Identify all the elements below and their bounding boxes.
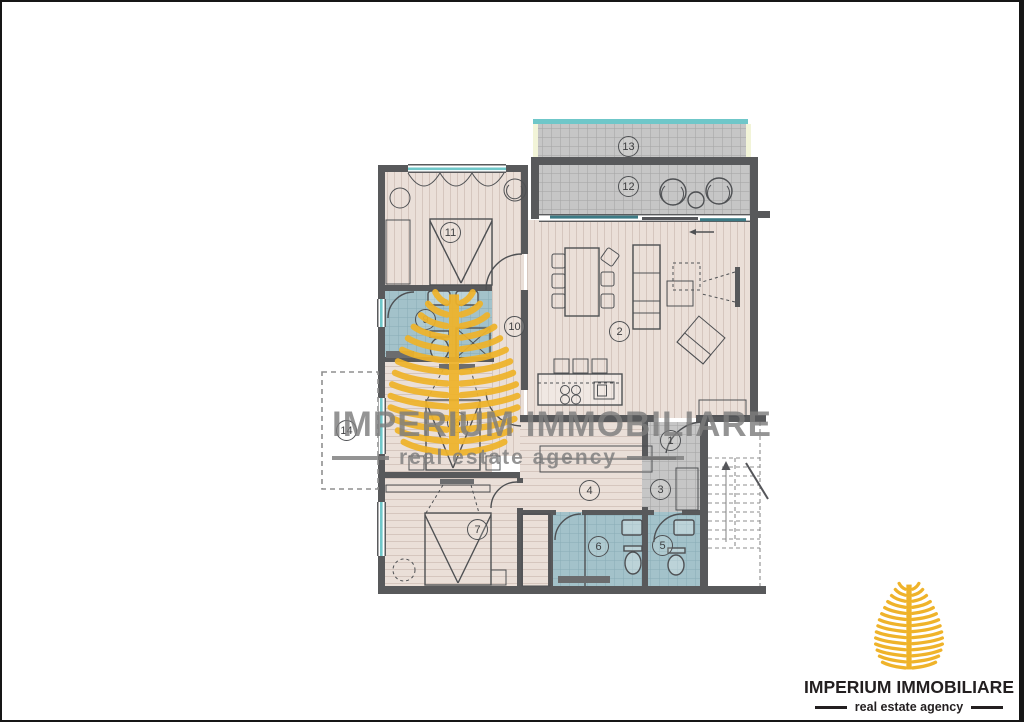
sliding-door-terrace bbox=[539, 214, 750, 222]
kitchen-counter-icon bbox=[538, 374, 622, 405]
terrace-13-edge bbox=[533, 119, 748, 124]
room-label-4: 4 bbox=[579, 480, 600, 501]
room-label-8: 8 bbox=[447, 412, 468, 433]
hallway-4-floor bbox=[520, 422, 642, 512]
sink-icon bbox=[456, 291, 478, 305]
window-bedroom-7 bbox=[377, 502, 386, 556]
staircase bbox=[708, 422, 768, 586]
logo-title: IMPERIUM IMMOBILIARE bbox=[803, 677, 1015, 698]
sink-icon bbox=[622, 520, 642, 535]
building-icon bbox=[846, 577, 972, 677]
bedroom-8-floor bbox=[384, 360, 492, 478]
sink-icon bbox=[674, 520, 694, 535]
room-label-3: 3 bbox=[650, 479, 671, 500]
room-label-11: 11 bbox=[440, 222, 461, 243]
room-label-6: 6 bbox=[588, 536, 609, 557]
room-label-9: 9 bbox=[415, 309, 436, 330]
floor-plan-page: 1234567891011121314 IMPERIUM IMMOBILIARE… bbox=[0, 0, 1024, 722]
room-label-5: 5 bbox=[652, 535, 673, 556]
room-label-7: 7 bbox=[467, 519, 488, 540]
stairs-up-arrow-icon bbox=[722, 461, 731, 470]
room-label-14: 14 bbox=[336, 420, 357, 441]
headboard-icon bbox=[439, 364, 475, 370]
room-label-2: 2 bbox=[609, 321, 630, 342]
terrace-13-border-right bbox=[746, 124, 751, 160]
window-bathroom-9 bbox=[377, 299, 386, 327]
room-label-13: 13 bbox=[618, 136, 639, 157]
room-label-10: 10 bbox=[504, 316, 525, 337]
radiator-icon bbox=[558, 576, 610, 583]
closet-strip-floor bbox=[520, 512, 552, 588]
terrace-13-border-left bbox=[533, 124, 538, 160]
radiator-icon bbox=[386, 351, 414, 358]
sink-icon bbox=[428, 291, 450, 305]
headboard-icon bbox=[440, 479, 474, 484]
room-label-12: 12 bbox=[618, 176, 639, 197]
agency-logo: IMPERIUM IMMOBILIARE real estate agency bbox=[803, 577, 1015, 714]
divider bbox=[971, 706, 1003, 709]
terrace-12-floor bbox=[537, 164, 752, 216]
logo-subtitle: real estate agency bbox=[803, 700, 1015, 714]
tv-icon bbox=[735, 267, 740, 307]
toilet-icon bbox=[624, 546, 642, 551]
terrace-13-floor bbox=[537, 124, 746, 160]
room-label-1: 1 bbox=[660, 430, 681, 451]
divider bbox=[815, 706, 847, 709]
toilet-icon bbox=[430, 331, 449, 337]
